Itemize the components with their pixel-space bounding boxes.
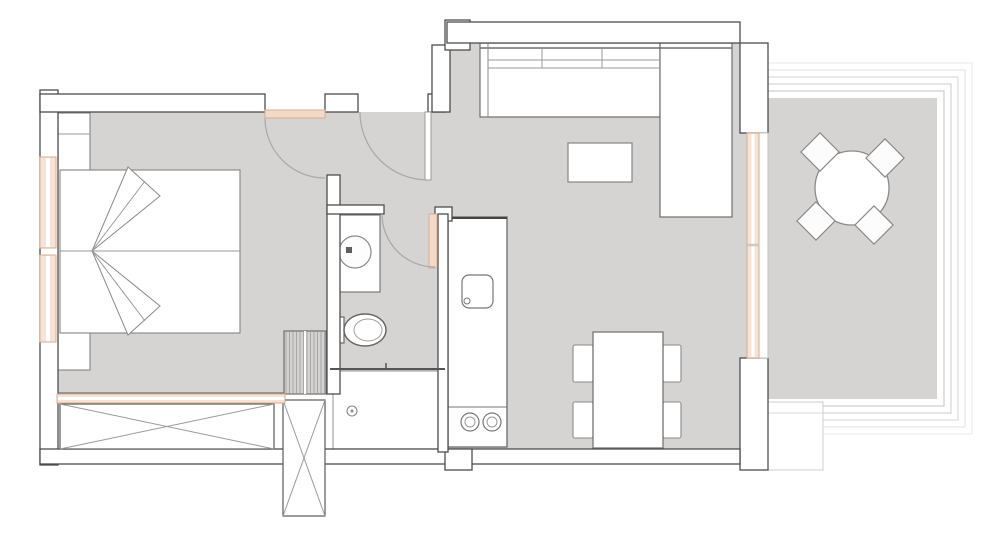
wall-entry-post-low xyxy=(432,45,450,112)
bedroom-door-leaf xyxy=(265,110,325,118)
wall-top-bedroom xyxy=(40,94,265,112)
coffee-table xyxy=(568,143,632,182)
wall-bottom-notch xyxy=(445,449,472,470)
wall-top-hall xyxy=(325,94,358,112)
stove-burner-left xyxy=(461,413,479,431)
shower-drain-dot xyxy=(351,410,354,413)
dining-chair-right-bottom xyxy=(663,402,681,438)
sofa-main xyxy=(480,43,660,117)
bathroom-door-leaf xyxy=(429,214,437,268)
balcony-floor xyxy=(768,98,937,399)
wall-bottom-band xyxy=(40,449,740,464)
dining-chair-right-top xyxy=(663,345,681,382)
wall-bathroom-top xyxy=(327,205,384,214)
dining-table xyxy=(593,332,663,448)
wall-top-living xyxy=(447,22,740,43)
dining-chair-left-top xyxy=(573,345,593,382)
kitchen-sink-faucet xyxy=(464,298,470,304)
kitchen-counter xyxy=(448,217,507,447)
sofa-chaise xyxy=(660,43,732,217)
wall-balcony-stub-top xyxy=(740,43,768,133)
entry-door-leaf xyxy=(425,112,431,180)
floor-plan-canvas xyxy=(0,0,1000,534)
wall-kitchen-partition xyxy=(438,214,448,452)
stove-burner-right xyxy=(483,413,501,431)
vanity-sink xyxy=(339,236,371,268)
floor-plan xyxy=(0,0,1000,534)
terrace-landing xyxy=(768,402,823,470)
wall-balcony-stub-bottom xyxy=(740,358,768,470)
vanity-faucet xyxy=(346,247,352,253)
dining-chair-left-bottom xyxy=(573,402,593,438)
